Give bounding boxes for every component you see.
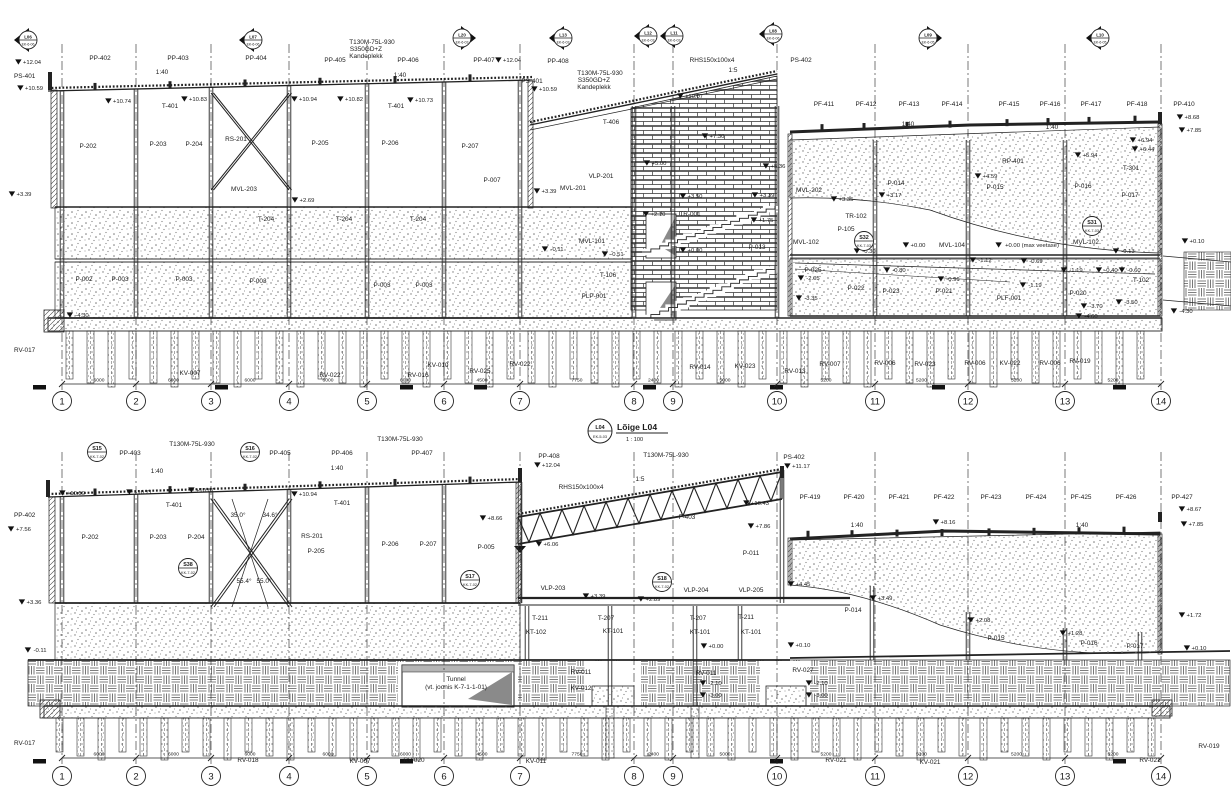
elevation-label: +10.94	[299, 97, 318, 103]
grid-number: 9	[670, 396, 675, 407]
grid-number: 8	[631, 396, 636, 407]
part-label: PF-424	[1026, 494, 1047, 501]
part-label: PF-422	[934, 494, 955, 501]
grid-number: 4	[286, 396, 291, 407]
part-label: T-102	[1133, 277, 1150, 284]
floor-band	[55, 262, 632, 318]
elevation-label: +7.85	[1187, 128, 1203, 134]
dimension-label: 4500	[477, 378, 488, 384]
elevation-label: +7.56	[16, 527, 32, 533]
part-label: RV-021	[825, 757, 847, 764]
elevation-label: +8.66	[488, 516, 504, 522]
part-label: P-017	[1121, 192, 1138, 199]
purlin-tick	[941, 529, 944, 536]
elevation-label: +7.30	[710, 134, 726, 140]
elevation-label: -3.35	[804, 296, 818, 302]
elevation-label: +0.00 (max veetase)	[1005, 243, 1059, 249]
part-label: P-016	[1080, 640, 1097, 647]
part-label: PF-414	[942, 101, 963, 108]
grid-number: 13	[1060, 396, 1071, 407]
section-marker-tag: L10	[1096, 33, 1104, 38]
grid-number: 7	[517, 771, 522, 782]
elevation-label: +10.87	[196, 488, 214, 494]
part-label: PF-417	[1081, 101, 1102, 108]
part-label: 1:40	[1046, 124, 1059, 131]
elevation-mark	[8, 526, 14, 531]
part-label: P-014	[844, 607, 861, 614]
elevation-label: +3.17	[887, 193, 902, 199]
title-block: L04 EK-5-03 Lõige L04 1 : 100	[588, 419, 668, 443]
part-label: RHS150x100x4	[690, 57, 735, 64]
part-label: P-204	[185, 141, 202, 148]
wall-hatch	[49, 497, 55, 603]
purlin-tick	[469, 74, 472, 81]
elevation-mark	[407, 97, 413, 102]
truss-deck	[518, 469, 782, 514]
elevation-mark	[1179, 612, 1185, 617]
elevation-mark	[291, 96, 297, 101]
section-marker-ref: EK-6-06	[22, 43, 35, 47]
part-label: PP-406	[331, 450, 353, 457]
elevation-mark	[19, 599, 25, 604]
part-label: 55.4°	[237, 577, 252, 585]
elevation-label: +10.59	[539, 87, 557, 93]
part-label: PF-416	[1040, 101, 1061, 108]
purlin-tick	[863, 123, 866, 130]
grid-number: 8	[631, 771, 636, 782]
part-label: P-207	[461, 143, 478, 150]
elevation-mark	[9, 191, 15, 196]
dimension-label: 5200	[916, 378, 927, 384]
roof-deck	[48, 77, 532, 88]
part-label: PS-401	[521, 78, 543, 85]
elevation-label: +2.10	[651, 212, 667, 218]
purlin-tick	[244, 79, 247, 86]
section-marker-ref: EK-6-06	[247, 43, 260, 47]
grid-number: 4	[286, 771, 291, 782]
part-label: Tunnel	[446, 676, 465, 683]
elevation-label: +3.39	[591, 594, 606, 600]
part-label: PP-403	[119, 450, 141, 457]
elevation-label: +7.85	[1189, 522, 1205, 528]
part-label: RV-022	[319, 372, 341, 379]
foundation-beam	[44, 706, 1170, 718]
drawing-scale: 1 : 100	[626, 437, 643, 443]
elevation-label: +10.43	[751, 501, 770, 507]
part-label: P-005	[477, 544, 494, 551]
detail-circle-tag: S17	[465, 574, 475, 580]
part-label: MVL-201	[560, 185, 586, 192]
purlin-tick	[949, 121, 952, 128]
detail-circle-tag: S38	[183, 562, 193, 568]
dimension-label: 4500	[477, 752, 488, 758]
grid-number: 11	[870, 771, 880, 782]
foundation-beam	[48, 318, 1162, 331]
part-label: T-211	[532, 615, 548, 622]
part-label: S350GD+Z	[578, 77, 610, 84]
part-label: T-106	[600, 272, 617, 279]
elevation-label: -0.96	[946, 277, 960, 283]
part-label: P-003	[111, 276, 128, 283]
elevation-label: -0.60	[1127, 268, 1141, 274]
title-ref-tag: L04	[595, 425, 604, 431]
elevation-mark	[903, 242, 909, 247]
datum-mark	[215, 385, 228, 390]
elevation-mark	[995, 242, 1001, 247]
elevation-label: +10.82	[345, 97, 363, 103]
part-label: P-011	[743, 550, 760, 557]
datum-mark	[33, 759, 46, 764]
section-marker-ref: EK-6-03	[668, 39, 681, 43]
dimension-label: 6000	[94, 378, 105, 384]
elevation-label: -0.51	[610, 252, 623, 258]
part-label: PF-415	[999, 101, 1020, 108]
section-drawing-canvas: 1600026000360004600056000645007775082400…	[0, 0, 1231, 796]
part-label: P-020	[1069, 290, 1086, 297]
elevation-label: -0.69	[1029, 259, 1042, 265]
elevation-mark	[291, 491, 297, 496]
part-label: PF-411	[814, 101, 835, 108]
grid-number: 7	[517, 396, 522, 407]
grid-number: 9	[670, 771, 675, 782]
elevation-mark	[784, 463, 790, 468]
part-label: PS-402	[790, 57, 812, 64]
datum-mark	[770, 385, 783, 390]
part-label: MVL-102	[1073, 239, 1099, 246]
wall-hatch	[1158, 534, 1162, 654]
detail-circle-tag: S32	[859, 235, 869, 241]
dimension-label: 6000	[168, 378, 179, 384]
section-marker-ref: EK-6-03	[557, 41, 570, 45]
dimension-label: 6000	[245, 378, 256, 384]
footing	[592, 686, 634, 706]
dimension-label: 5200	[821, 378, 832, 384]
part-label: PS-402	[783, 454, 805, 461]
part-label: RP-401	[1002, 158, 1024, 165]
part-label: RV-006	[1039, 360, 1061, 367]
elevation-label: +4.45	[796, 582, 812, 588]
elevation-mark	[933, 519, 939, 524]
dimension-label: 5000	[720, 752, 731, 758]
part-label: KV-023	[735, 363, 756, 370]
purlin-tick	[94, 83, 97, 90]
elevation-label: -1.19	[1028, 283, 1041, 289]
part-label: PF-420	[844, 494, 865, 501]
grid-number: 14	[1156, 396, 1167, 407]
purlin-tick	[896, 530, 899, 537]
part-label: 1:40	[156, 69, 169, 76]
part-label: T-204	[336, 216, 353, 223]
part-label: 1:40	[902, 121, 915, 128]
purlin-tick	[94, 489, 97, 496]
part-label: RV-019	[1069, 358, 1091, 365]
part-label: RV-006	[964, 360, 986, 367]
part-label: T130M-75L-930	[377, 436, 423, 443]
parapet	[46, 480, 50, 497]
elevation-label: -2.10	[814, 681, 828, 687]
elevation-label: +1.75	[759, 218, 775, 224]
part-label: P-003	[175, 276, 192, 283]
roof-deck	[48, 479, 522, 494]
part-label: 1:5	[636, 476, 645, 483]
part-label: P-014	[887, 180, 904, 187]
part-label: P-023	[882, 288, 899, 295]
detail-circle-tag: S15	[92, 446, 102, 452]
purlin-tick	[319, 481, 322, 488]
elevation-mark	[1182, 238, 1188, 243]
part-label: P-202	[79, 143, 96, 150]
part-label: Kandeplekk	[577, 84, 611, 91]
elevation-label: +10.59	[25, 86, 43, 92]
part-label: T-211	[738, 614, 754, 621]
grid-number: 5	[364, 396, 369, 407]
concrete-fill	[790, 127, 1160, 253]
part-label: KT-101	[690, 629, 711, 636]
section-marker-ref: EK-6-03	[642, 39, 655, 43]
part-label: KT-101	[603, 628, 624, 635]
purlin-tick	[469, 477, 472, 484]
part-label: T130M-75L-930	[169, 441, 215, 448]
part-label: (vt. joonis K-7-1-1-01)	[425, 684, 487, 691]
part-label: RV-014	[689, 364, 711, 371]
purlin-tick	[169, 486, 172, 493]
dimension-label: 5200	[1108, 378, 1119, 384]
elevation-label: +12.04	[503, 58, 522, 64]
title-ref-sheet: EK-5-03	[593, 435, 607, 439]
part-label: 35.0°	[231, 511, 246, 519]
part-label: T-301	[1123, 165, 1140, 172]
dimension-label: 5200	[1011, 378, 1022, 384]
grid-number: 12	[963, 771, 974, 782]
part-label: PF-426	[1116, 494, 1137, 501]
part-label: KV-012	[571, 685, 592, 692]
detail-circle-tag: S31	[1087, 220, 1097, 226]
elevation-label: -4.30	[1179, 309, 1193, 315]
pile-cap	[1152, 700, 1172, 716]
elevation-label: +2.69	[300, 198, 315, 204]
grid-number: 2	[133, 771, 138, 782]
elevation-mark	[17, 85, 23, 90]
datum-mark	[770, 759, 783, 764]
part-label: PLP-001	[582, 293, 607, 300]
part-label: PF-413	[899, 101, 920, 108]
part-label: P-016	[1074, 183, 1091, 190]
section-marker-ref: EK-6-05	[1094, 41, 1107, 45]
elevation-label: +3.36	[27, 600, 43, 606]
grid-number: 6	[441, 771, 446, 782]
elevation-label: -0.13	[1121, 249, 1135, 255]
part-label: P-021	[935, 288, 952, 295]
part-label: RV-025	[469, 368, 491, 375]
wall-hatch	[528, 80, 533, 208]
part-label: TR-001	[679, 211, 701, 218]
elevation-mark	[1177, 114, 1183, 119]
top-section-geometry: 1600026000360004600056000645007775082400…	[33, 44, 1231, 411]
part-label: T130M-75L-930	[643, 452, 689, 459]
grid-number: 1	[59, 396, 64, 407]
elevation-mark	[1171, 308, 1177, 313]
part-label: VLP-204	[684, 587, 709, 594]
purlin-tick	[821, 124, 824, 131]
part-label: P-003	[249, 278, 266, 285]
purlin-tick	[1123, 527, 1126, 534]
elevation-label: +3.39	[542, 189, 557, 195]
parapet	[1158, 112, 1162, 124]
part-label: PP-427	[1171, 494, 1193, 501]
ground-hatch	[1184, 252, 1231, 310]
elevation-mark	[337, 96, 343, 101]
datum-mark	[1113, 759, 1126, 764]
section-marker-tag: L12	[644, 31, 652, 36]
bottom-section-geometry: 1600026000360004600056000645007775082400…	[28, 452, 1230, 786]
elevation-label: +6.06	[544, 542, 560, 548]
part-label: RV-013	[784, 368, 806, 375]
elevation-label: +7.86	[756, 524, 772, 530]
grid-number: 11	[870, 396, 880, 407]
grid-number: 10	[772, 771, 783, 782]
part-label: PP-402	[89, 55, 111, 62]
part-label: 1:40	[851, 522, 864, 529]
detail-circle-tag: S16	[245, 446, 255, 452]
detail-circle-ref: KK-7-03	[1085, 229, 1099, 233]
part-label: 55.0°	[257, 577, 272, 585]
datum-mark	[643, 385, 656, 390]
elevation-label: +0.00	[688, 248, 704, 254]
part-label: T-406	[603, 119, 620, 126]
part-label: P-003	[415, 282, 432, 289]
part-label: PP-402	[14, 512, 36, 519]
detail-circle-ref: KK-7-03	[857, 244, 871, 248]
datum-mark	[33, 385, 46, 390]
part-label: T-401	[334, 500, 351, 507]
part-label: P-206	[381, 140, 398, 147]
part-label: TR-102	[845, 213, 867, 220]
purlin-tick	[807, 531, 810, 538]
detail-circle-ref: KK-7-02	[655, 585, 669, 589]
part-label: T-207	[690, 615, 707, 622]
datum-mark	[400, 385, 413, 390]
elevation-label: -0.80	[892, 268, 906, 274]
part-label: 1:40	[331, 465, 344, 472]
dimension-label: 5200	[1011, 752, 1022, 758]
elevation-mark	[480, 515, 486, 520]
elevation-label: +3.39	[760, 193, 775, 199]
part-label: RV-011	[571, 669, 592, 676]
part-label: PS-401	[14, 73, 36, 80]
grid-number: 3	[208, 771, 213, 782]
part-label: RV-006	[874, 360, 896, 367]
purlin-tick	[169, 81, 172, 88]
elevation-label: -0.40	[1104, 268, 1118, 274]
part-label: P-203	[149, 141, 166, 148]
grid-number: 14	[1156, 771, 1167, 782]
part-label: P-013	[748, 244, 765, 251]
elevation-label: +5.00	[652, 161, 668, 167]
part-label: P-204	[187, 534, 204, 541]
grid-number: 12	[963, 396, 974, 407]
part-label: RV-022	[509, 361, 531, 368]
dimension-label: 7750	[572, 752, 583, 758]
part-label: MVL-102	[793, 239, 819, 246]
part-label: KV-010	[428, 362, 449, 369]
elevation-label: -4.30	[75, 313, 89, 319]
elevation-mark	[15, 59, 21, 64]
part-label: RV-023	[914, 361, 936, 368]
part-label: RHS150x100x4	[559, 484, 604, 491]
part-label: VLP-205	[739, 587, 764, 594]
pile-cap	[40, 700, 60, 718]
elevation-label: -0.11	[551, 247, 564, 253]
elevation-mark	[1181, 521, 1187, 526]
section-marker-tag: L07	[249, 35, 257, 40]
part-label: PF-425	[1071, 494, 1092, 501]
part-label: PP-405	[324, 57, 346, 64]
part-label: PP-407	[411, 450, 433, 457]
part-label: MVL-104	[939, 242, 965, 249]
elevation-label: +2.08	[976, 618, 992, 624]
part-label: KV-007	[350, 758, 371, 765]
part-label: PLF-001	[997, 295, 1022, 302]
grid-number: 3	[208, 396, 213, 407]
elevation-label: +0.00	[911, 243, 927, 249]
elevation-label: -3.00	[708, 693, 722, 699]
part-label: RS-201	[301, 533, 323, 540]
elevation-label: +4.59	[983, 174, 998, 180]
part-label: P-017	[1126, 643, 1143, 650]
part-label: PP-403	[167, 55, 189, 62]
wall-hatch	[788, 134, 792, 316]
part-label: RV-021	[1139, 757, 1161, 764]
elevation-label: +6.94	[1138, 138, 1154, 144]
elevation-mark	[1179, 506, 1185, 511]
datum-mark	[1113, 385, 1126, 390]
elevation-label: +5.36	[771, 164, 787, 170]
part-label: VLP-203	[541, 585, 566, 592]
part-label: RV-017	[14, 347, 36, 354]
dimension-label: 2400	[648, 752, 659, 758]
elevation-label: +12.04	[542, 463, 561, 469]
part-label: P-202	[81, 534, 98, 541]
dimension-label: 7750	[572, 378, 583, 384]
dimension-label: 5200	[916, 752, 927, 758]
part-label: MVL-203	[231, 186, 257, 193]
elevation-label: -3.70	[1089, 304, 1103, 310]
part-label: P-003	[373, 282, 390, 289]
part-label: T-401	[388, 103, 405, 110]
elevation-mark	[25, 647, 31, 652]
part-label: 34.6°	[263, 511, 278, 519]
dimension-label: 5200	[1108, 752, 1119, 758]
grid-number: 2	[133, 396, 138, 407]
part-label: 1:40	[151, 468, 164, 475]
detail-circle-ref: KK-7-02	[90, 455, 104, 459]
part-label: F-403	[679, 514, 696, 521]
part-label: P-025	[804, 267, 821, 274]
purlin-tick	[394, 479, 397, 486]
elevation-mark	[181, 96, 187, 101]
dimension-label: 6000	[323, 752, 334, 758]
part-label: KV-007	[180, 370, 201, 377]
elevation-mark	[701, 643, 707, 648]
elevation-label: -4.60	[1084, 314, 1098, 320]
part-label: PF-412	[856, 101, 877, 108]
footing	[766, 686, 806, 706]
part-label: T-401	[166, 502, 183, 509]
part-label: RS-201	[225, 136, 247, 143]
part-label: 1:40	[1076, 522, 1089, 529]
purlin-tick	[1033, 528, 1036, 535]
part-label: KV-022	[1000, 360, 1021, 367]
